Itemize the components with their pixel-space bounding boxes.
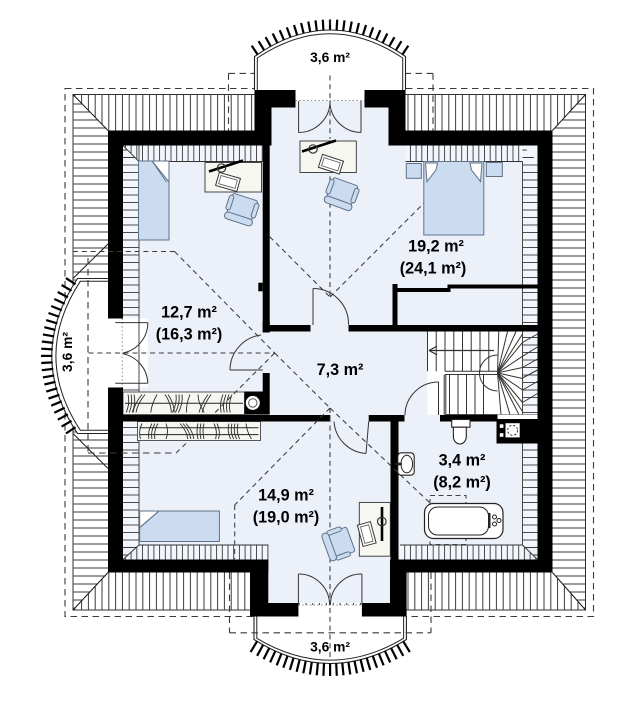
- svg-text:3,6 m²: 3,6 m²: [310, 50, 350, 65]
- svg-text:19,2 m²: 19,2 m²: [408, 238, 464, 256]
- svg-text:(24,1 m²): (24,1 m²): [400, 260, 467, 278]
- svg-text:(16,3 m²): (16,3 m²): [156, 326, 223, 344]
- svg-text:7,3 m²: 7,3 m²: [317, 361, 364, 379]
- svg-text:14,9 m²: 14,9 m²: [258, 487, 314, 505]
- svg-text:(8,2 m²): (8,2 m²): [433, 474, 491, 492]
- svg-text:12,7 m²: 12,7 m²: [161, 304, 217, 322]
- svg-text:3,6 m²: 3,6 m²: [60, 332, 75, 372]
- svg-text:(19,0 m²): (19,0 m²): [253, 509, 320, 527]
- svg-text:3,4 m²: 3,4 m²: [439, 452, 486, 470]
